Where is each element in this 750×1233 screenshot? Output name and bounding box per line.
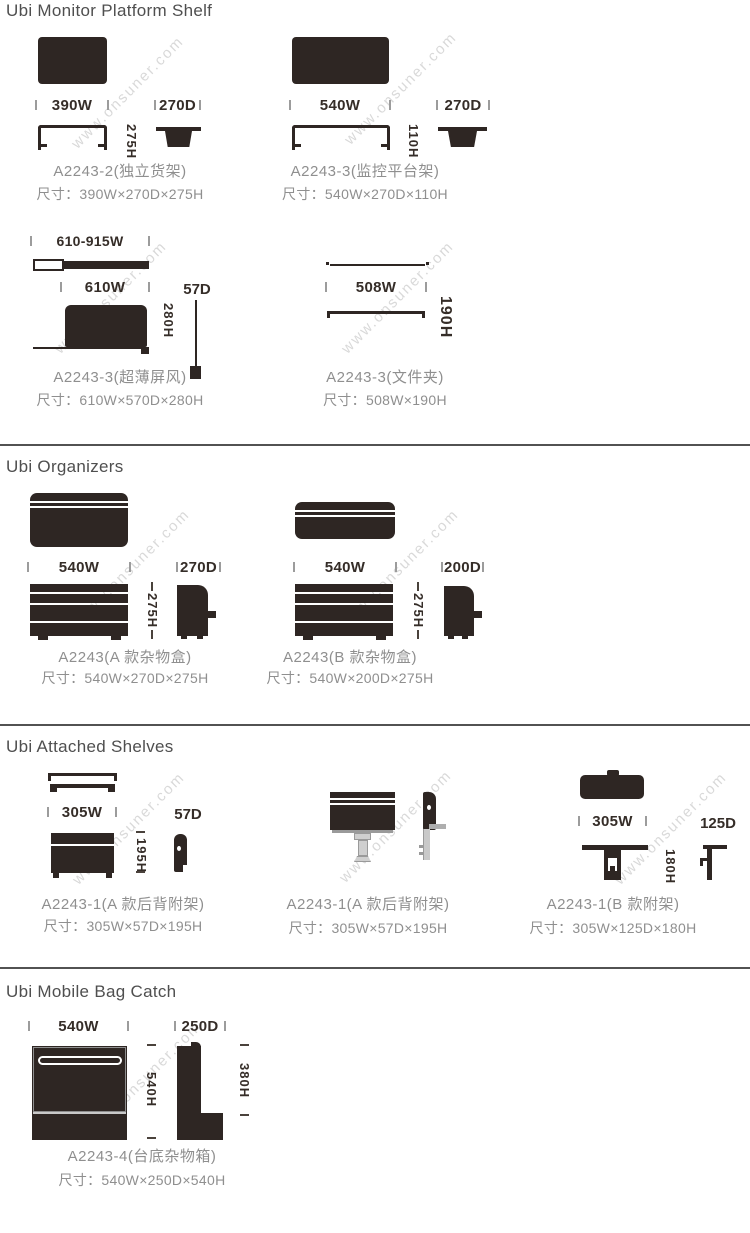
range-dimension: 610-915W: [30, 235, 150, 247]
side-foot: [448, 636, 454, 639]
dimension-tick: [389, 100, 391, 110]
depth-label: 270D: [159, 97, 196, 114]
drawer-band: [30, 623, 128, 636]
width-dimension: 540W: [27, 561, 131, 573]
dimension-tick: [47, 807, 49, 817]
drawer-band: [295, 594, 393, 603]
top-view-drawing: [38, 37, 107, 84]
dimension-tick: [395, 562, 397, 572]
pole-collar: [354, 833, 371, 840]
height-extent-tick: [136, 831, 145, 833]
depth-label: 57D: [170, 806, 206, 823]
stem-clamp-screw: [610, 866, 615, 871]
dimension-tick: [127, 1021, 129, 1031]
clamp-arm: [429, 824, 446, 829]
product-size: 尺寸：540W×250D×540H: [32, 1170, 252, 1190]
height-extent-tick: [417, 582, 419, 591]
height-label: 195H: [134, 838, 149, 873]
product-name: A2243-1(B 款附架): [513, 893, 713, 914]
top-view-rail: [48, 773, 117, 776]
height-label: 275H: [124, 124, 139, 159]
drawer-band: [30, 584, 128, 592]
drawer-band: [30, 594, 128, 603]
side-mount-hole: [177, 846, 181, 851]
base-rail: [33, 347, 149, 349]
shelf-divider-line: [330, 798, 395, 800]
lid-line: [295, 515, 395, 517]
clamp-hook: [419, 852, 424, 855]
height-label: 180H: [663, 849, 678, 884]
dimension-tick: [154, 100, 156, 110]
side-view-upright: [177, 1046, 201, 1114]
top-view-drawing: [580, 775, 644, 799]
section-divider: [0, 724, 750, 726]
product-size: 尺寸：540W×270D×110H: [245, 184, 485, 204]
section-title-monitor-platform-shelf: Ubi Monitor Platform Shelf: [6, 1, 212, 21]
product-name: A2243-2(独立货架): [20, 160, 220, 181]
product-name: A2243-3(文件夹): [285, 366, 485, 387]
top-view-corner: [108, 786, 115, 792]
product-size: 尺寸：540W×200D×275H: [240, 668, 460, 688]
side-view-leg: [707, 849, 712, 880]
dimension-tick: [107, 100, 109, 110]
front-view-drawing: [38, 125, 107, 150]
depth-label: 270D: [180, 559, 217, 576]
drawer-band: [30, 605, 128, 621]
shelf-divider-line: [330, 803, 395, 805]
height-label: 275H: [411, 593, 426, 628]
front-foot: [376, 636, 386, 640]
width-dimension: 540W: [28, 1020, 129, 1032]
dimension-tick: [174, 1021, 176, 1031]
rail-foot: [422, 314, 425, 318]
dimension-tick: [199, 100, 201, 110]
side-mount-hole: [427, 805, 431, 810]
dimension-tick: [578, 816, 580, 826]
front-view-drawing: [292, 125, 390, 150]
front-view-drawing: [295, 584, 393, 636]
front-foot: [292, 144, 301, 147]
dimension-tick: [129, 562, 131, 572]
front-hook: [53, 873, 59, 878]
dimension-tick: [289, 100, 291, 110]
product-size: 尺寸：610W×570D×280H: [10, 390, 230, 410]
dimension-tick: [27, 562, 29, 572]
rail-front-view: [327, 311, 425, 314]
width-label: 540W: [59, 559, 99, 576]
depth-label: 200D: [444, 559, 481, 576]
section-title-organizers: Ubi Organizers: [6, 457, 124, 477]
depth-label: 270D: [444, 97, 481, 114]
side-hook: [700, 858, 703, 866]
dimension-tick: [115, 807, 117, 817]
depth-label: 57D: [178, 281, 216, 298]
width-label: 540W: [320, 97, 360, 114]
lid-line: [30, 501, 128, 503]
depth-label: 125D: [696, 815, 740, 832]
height-extent-tick: [147, 1044, 156, 1046]
front-foot: [38, 636, 48, 640]
width-label: 508W: [356, 279, 396, 296]
width-label: 390W: [52, 97, 92, 114]
product-name: A2243-1(A 款后背附架): [23, 893, 223, 914]
dimension-tick: [436, 100, 438, 110]
rail-end-cap: [326, 262, 329, 265]
height-label: 190H: [436, 296, 454, 338]
width-label: 305W: [592, 813, 632, 830]
catalog-page: Ubi Monitor Platform Shelf www.onsuner.c…: [0, 0, 750, 1233]
product-size: 尺寸：540W×270D×275H: [15, 668, 235, 688]
dimension-tick: [293, 562, 295, 572]
top-view-drawing: [295, 502, 395, 539]
height2-label: 380H: [237, 1063, 252, 1098]
width-dimension: 305W: [47, 806, 117, 818]
product-name: A2243(B 款杂物盒): [250, 646, 450, 667]
side-view-drawing: [177, 585, 208, 636]
rail-foot: [327, 314, 330, 318]
side-hook: [208, 611, 216, 618]
shelf-divider-line: [51, 844, 114, 846]
height-extent-tick: [240, 1044, 249, 1046]
side-foot: [462, 636, 468, 639]
top-view-end-hook: [48, 773, 51, 781]
rail-top-view: [330, 264, 425, 266]
height-label: 280H: [161, 303, 176, 338]
dimension-tick: [35, 100, 37, 110]
front-foot: [381, 144, 390, 147]
depth-dimension: 200D: [441, 561, 484, 573]
top-view-end-hook: [114, 773, 117, 781]
width-dimension: 540W: [289, 99, 391, 111]
front-view-drawing: [30, 584, 128, 636]
dimension-tick: [325, 282, 327, 292]
width-dimension: 610W: [60, 281, 150, 293]
product-name: A2243-4(台底杂物箱): [42, 1145, 242, 1166]
telescopic-rail-inner: [64, 261, 149, 269]
front-divider-line: [33, 1112, 126, 1114]
section-divider: [0, 967, 750, 969]
side-view-top: [438, 127, 487, 131]
screen-panel-drawing: [65, 305, 147, 347]
drawer-band: [295, 623, 393, 636]
dimension-tick: [148, 236, 150, 246]
side-view-lip: [191, 1042, 201, 1050]
lid-line: [295, 510, 395, 512]
front-view-drawing: [51, 833, 114, 873]
pole-column: [358, 840, 368, 856]
height-extent-tick: [240, 1114, 249, 1116]
dimension-tick: [488, 100, 490, 110]
top-view-corner: [50, 786, 57, 792]
dimension-tick: [224, 1021, 226, 1031]
dimension-tick: [30, 236, 32, 246]
dimension-tick: [60, 282, 62, 292]
telescopic-rail-outer: [33, 259, 64, 271]
product-name: A2243-3(超薄屏风): [20, 366, 220, 387]
width-dimension: 305W: [578, 815, 647, 827]
front-foot: [38, 144, 47, 147]
side-notch: [183, 865, 187, 872]
width-label: 610W: [85, 279, 125, 296]
clamp-strip: [423, 829, 430, 860]
side-profile-line: [195, 300, 197, 366]
product-size: 尺寸：390W×270D×275H: [10, 184, 230, 204]
product-name: A2243-1(A 款后背附架): [268, 893, 468, 914]
handle-slot: [38, 1056, 122, 1065]
side-view-leg: [448, 131, 477, 147]
height-extent-tick: [151, 582, 153, 591]
top-view-drawing: [292, 37, 389, 84]
height-label: 275H: [145, 593, 160, 628]
top-view-shelf-edge: [50, 784, 115, 788]
depth-dimension: 270D: [436, 99, 490, 111]
lid-line: [30, 506, 128, 508]
depth-dimension: 270D: [176, 561, 221, 573]
width-dimension: 390W: [35, 99, 109, 111]
front-foot: [111, 636, 121, 640]
height-extent-tick: [136, 871, 145, 873]
clamp-hook: [419, 845, 424, 848]
top-view-tab: [607, 770, 619, 776]
dimension-tick: [219, 562, 221, 572]
dimension-tick: [148, 282, 150, 292]
width-label: 540W: [325, 559, 365, 576]
dimension-tick: [28, 1021, 30, 1031]
front-foot: [303, 636, 313, 640]
section-title-mobile-bag-catch: Ubi Mobile Bag Catch: [6, 982, 176, 1002]
front-hook: [106, 873, 112, 878]
dimension-tick: [482, 562, 484, 572]
range-label: 610-915W: [57, 233, 124, 249]
base-foot: [141, 349, 149, 354]
height-label: 540H: [144, 1072, 159, 1107]
side-hook: [474, 611, 482, 618]
product-name: A2243-3(监控平台架): [255, 160, 475, 181]
width-label: 305W: [62, 804, 102, 821]
height-extent-tick: [147, 1137, 156, 1139]
product-size: 尺寸：508W×190H: [285, 390, 485, 410]
section-title-attached-shelves: Ubi Attached Shelves: [6, 737, 174, 757]
width-dimension: 508W: [325, 281, 427, 293]
drawer-band: [295, 605, 393, 621]
side-foot: [197, 636, 203, 639]
side-foot: [181, 636, 187, 639]
product-size: 尺寸：305W×57D×195H: [268, 918, 468, 938]
rail-end-cap: [426, 262, 429, 265]
dimension-tick: [441, 562, 443, 572]
section-divider: [0, 444, 750, 446]
height-extent-tick: [417, 630, 419, 639]
side-view-base: [177, 1113, 223, 1140]
depth-dimension: 270D: [154, 99, 201, 111]
width-label: 540W: [58, 1018, 98, 1035]
product-name: A2243(A 款杂物盒): [25, 646, 225, 667]
height-label: 110H: [406, 124, 421, 158]
depth-dimension: 250D: [174, 1020, 226, 1032]
front-foot: [98, 144, 107, 147]
drawer-band: [295, 584, 393, 592]
side-view-drawing: [444, 586, 474, 636]
side-view-leg: [165, 131, 192, 147]
product-size: 尺寸：305W×125D×180H: [513, 918, 713, 938]
dimension-tick: [176, 562, 178, 572]
side-view-top: [156, 127, 201, 131]
product-size: 尺寸：305W×57D×195H: [23, 916, 223, 936]
dimension-tick: [645, 816, 647, 826]
dimension-tick: [425, 282, 427, 292]
height-extent-tick: [151, 630, 153, 639]
width-dimension: 540W: [293, 561, 397, 573]
depth-label: 250D: [181, 1018, 218, 1035]
